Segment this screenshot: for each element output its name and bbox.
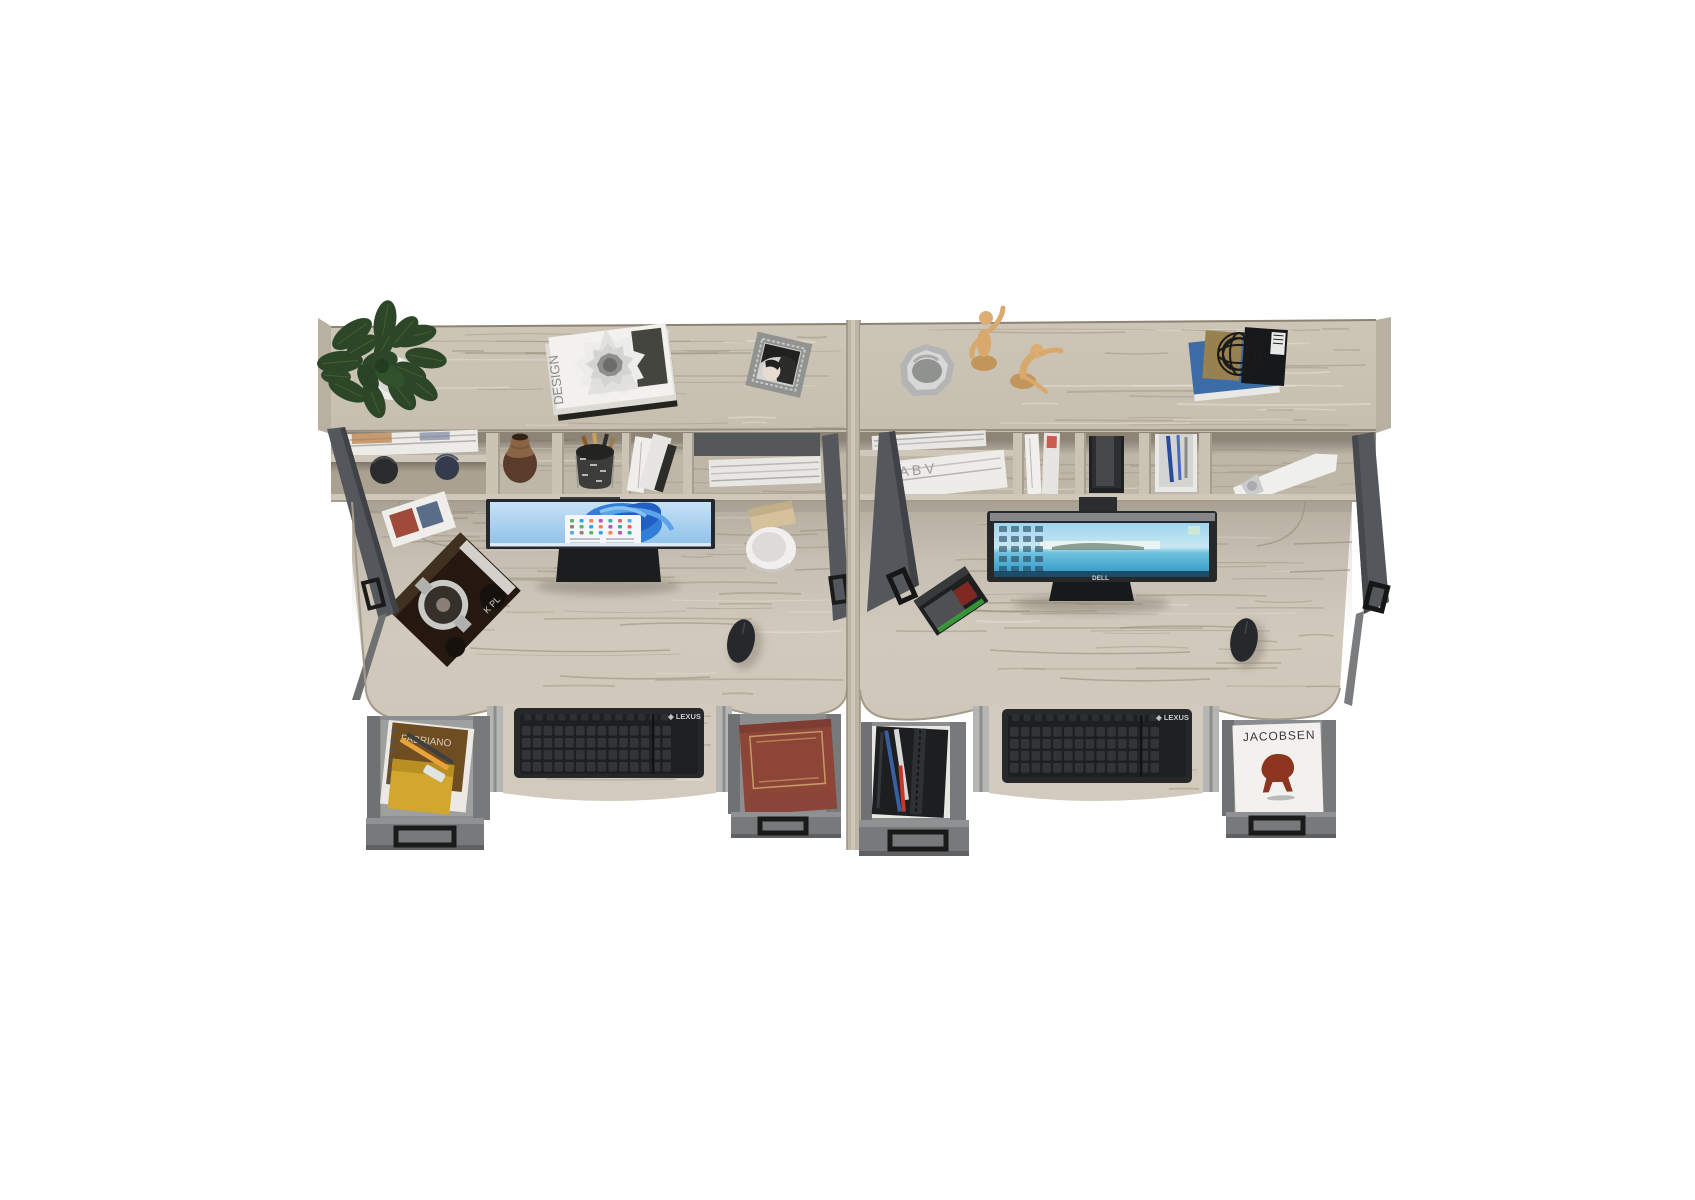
svg-text:DELL: DELL	[1092, 575, 1109, 582]
svg-text:◈ LEXUS: ◈ LEXUS	[1155, 713, 1189, 722]
svg-text:JACOBSEN: JACOBSEN	[1243, 728, 1316, 745]
svg-text:◈ LEXUS: ◈ LEXUS	[667, 712, 701, 721]
